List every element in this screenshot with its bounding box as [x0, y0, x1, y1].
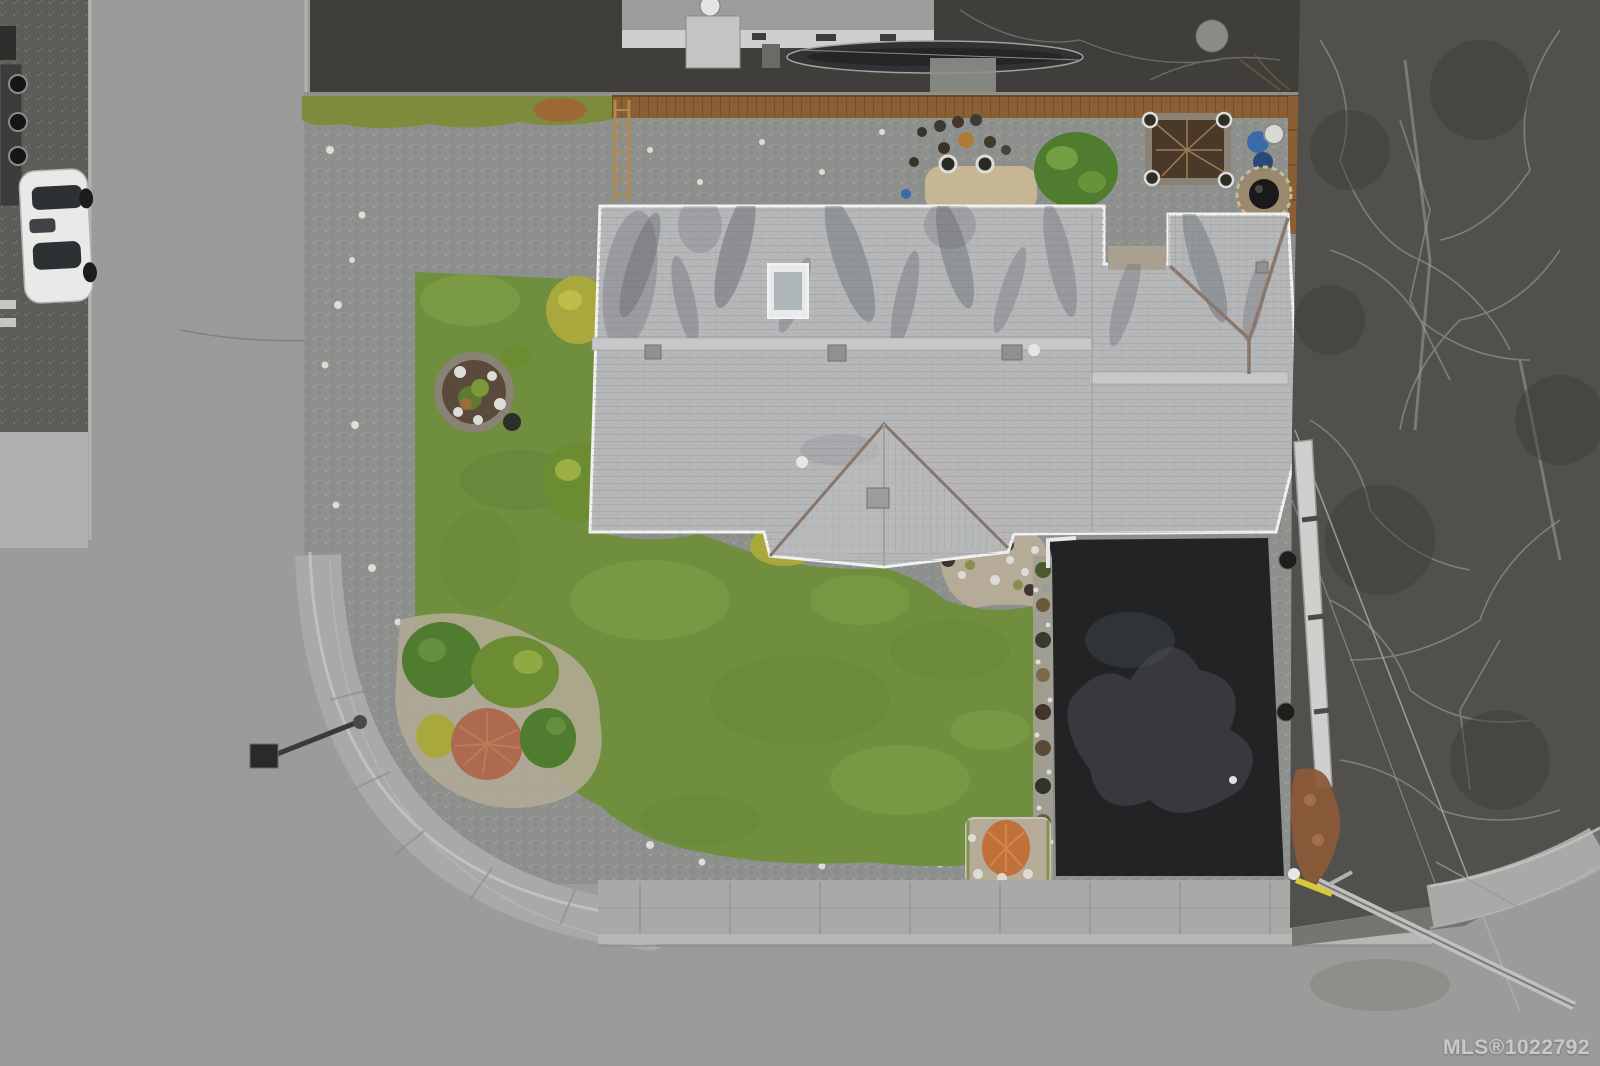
- curb-mark: [0, 300, 16, 309]
- white-rim-pot: [940, 156, 956, 172]
- circular-garden-bed: [434, 352, 514, 432]
- white-rim-pot: [977, 156, 993, 172]
- front-plant-bed: [966, 818, 1050, 884]
- mls-watermark: MLS®1022792: [1443, 1036, 1590, 1060]
- boulder: [1196, 20, 1228, 52]
- white-lid: [1264, 124, 1284, 144]
- vent-cap: [796, 456, 808, 468]
- car-rear-window: [32, 241, 81, 270]
- house-roof: [580, 188, 1310, 580]
- car-windshield: [31, 185, 82, 211]
- trailer-wheel: [9, 113, 27, 131]
- roof-vent: [1002, 345, 1022, 360]
- green-bush: [402, 622, 482, 698]
- ridge-cap-wing: [1090, 372, 1288, 384]
- red-bush: [451, 708, 523, 780]
- roof-vent: [1256, 262, 1268, 273]
- concrete-pad: [930, 58, 996, 92]
- backyard-bush: [1034, 132, 1118, 208]
- skylight: [768, 264, 808, 318]
- green-bush: [520, 708, 576, 768]
- garden-ornament: [503, 413, 521, 431]
- black-pot: [1277, 703, 1295, 721]
- road-stain: [1310, 959, 1450, 1011]
- neighbor-window: [880, 34, 896, 41]
- curb-mark: [0, 318, 16, 327]
- blue-pot: [901, 189, 911, 199]
- car-sunroof: [29, 218, 56, 233]
- ac-unit: [762, 44, 780, 68]
- shed-panel: [686, 16, 740, 68]
- vent-cap: [1028, 344, 1040, 356]
- wet-patch: [1085, 612, 1175, 668]
- trailer-wheel: [9, 75, 27, 93]
- black-pot: [1279, 551, 1297, 569]
- cupola: [700, 0, 720, 16]
- dead-vine-patch: [534, 98, 586, 122]
- roof-vent: [828, 345, 846, 361]
- small-bush: [500, 344, 532, 368]
- property: [302, 92, 1310, 884]
- roof-vent: [645, 345, 661, 359]
- raised-garden-bed: [1143, 113, 1233, 187]
- neighbor-window: [816, 34, 836, 41]
- aerial-photo: MLS®1022792: [0, 0, 1600, 1066]
- lamp-head: [250, 744, 278, 768]
- chimney: [867, 488, 889, 508]
- yellow-bush: [416, 714, 456, 758]
- asphalt-driveway: [1048, 538, 1284, 876]
- olive-bush: [471, 636, 559, 708]
- trailer-wheel: [9, 147, 27, 165]
- photo-canvas: [0, 0, 1600, 1066]
- pebble: [1229, 776, 1237, 784]
- white-car: [19, 168, 99, 304]
- lamp-base: [353, 715, 367, 729]
- neighbor-window: [752, 33, 766, 40]
